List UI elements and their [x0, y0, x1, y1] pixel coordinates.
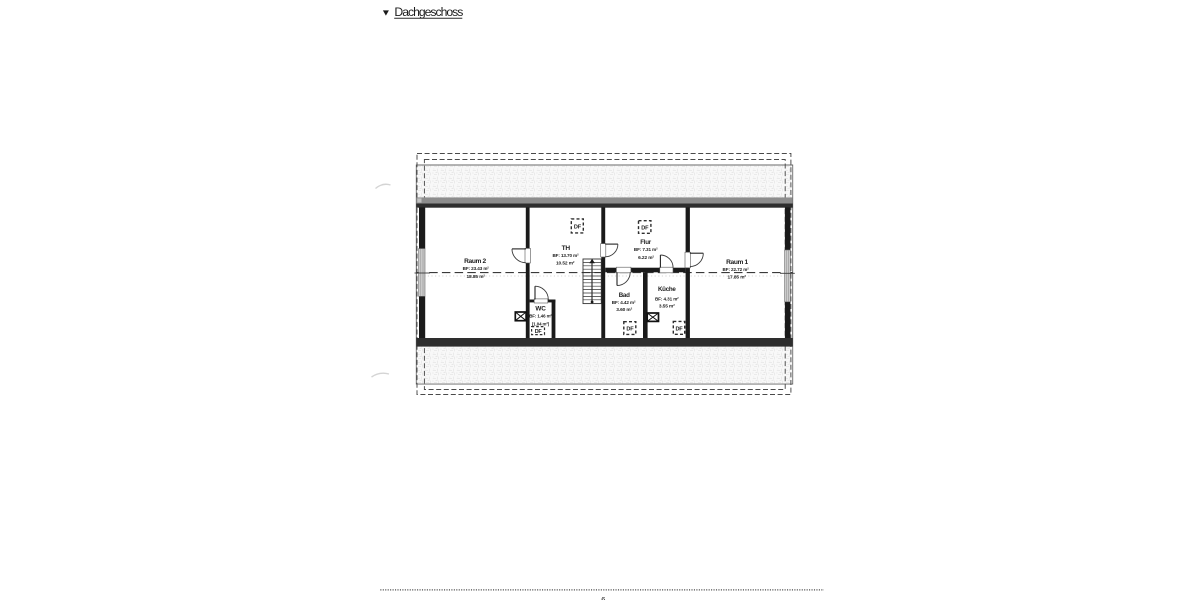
svg-text:BF: 23.43 m²: BF: 23.43 m²	[463, 266, 490, 271]
svg-text:BF: 1.46 m²: BF: 1.46 m²	[529, 314, 552, 319]
svg-text:3.55 m²: 3.55 m²	[659, 303, 675, 309]
svg-text:6.22 m²: 6.22 m²	[638, 255, 654, 261]
svg-text:BF: 4.42 m²: BF: 4.42 m²	[612, 300, 636, 305]
svg-text:10.52 m²: 10.52 m²	[556, 261, 575, 267]
svg-text:Dachgeschoss: Dachgeschoss	[394, 5, 463, 19]
svg-text:Raum 1: Raum 1	[726, 259, 748, 266]
svg-text:Bad: Bad	[619, 292, 630, 299]
svg-text:(1.04 m²): (1.04 m²)	[532, 322, 550, 327]
svg-text:BF: 4.31 m²: BF: 4.31 m²	[655, 296, 679, 301]
svg-text:BF: 13.70 m²: BF: 13.70 m²	[552, 253, 579, 258]
svg-text:Raum 2: Raum 2	[464, 258, 486, 265]
svg-text:DF: DF	[641, 225, 649, 231]
svg-text:BF: 7.31 m²: BF: 7.31 m²	[634, 247, 658, 252]
svg-text:DF: DF	[574, 224, 582, 230]
svg-text:18.85 m²: 18.85 m²	[466, 274, 485, 280]
svg-text:Flur: Flur	[640, 239, 652, 246]
svg-text:TH: TH	[562, 245, 571, 252]
svg-text:DF: DF	[626, 327, 634, 333]
svg-text:WC: WC	[535, 306, 546, 313]
svg-text:17.85 m²: 17.85 m²	[727, 274, 746, 280]
svg-text:3.60 m²: 3.60 m²	[616, 307, 632, 313]
svg-text:DF: DF	[675, 327, 683, 333]
svg-text:Küche: Küche	[658, 286, 676, 293]
svg-text:BF: 22.72 m²: BF: 22.72 m²	[723, 267, 750, 272]
svg-text:6: 6	[601, 595, 605, 600]
svg-text:DF: DF	[535, 329, 543, 335]
